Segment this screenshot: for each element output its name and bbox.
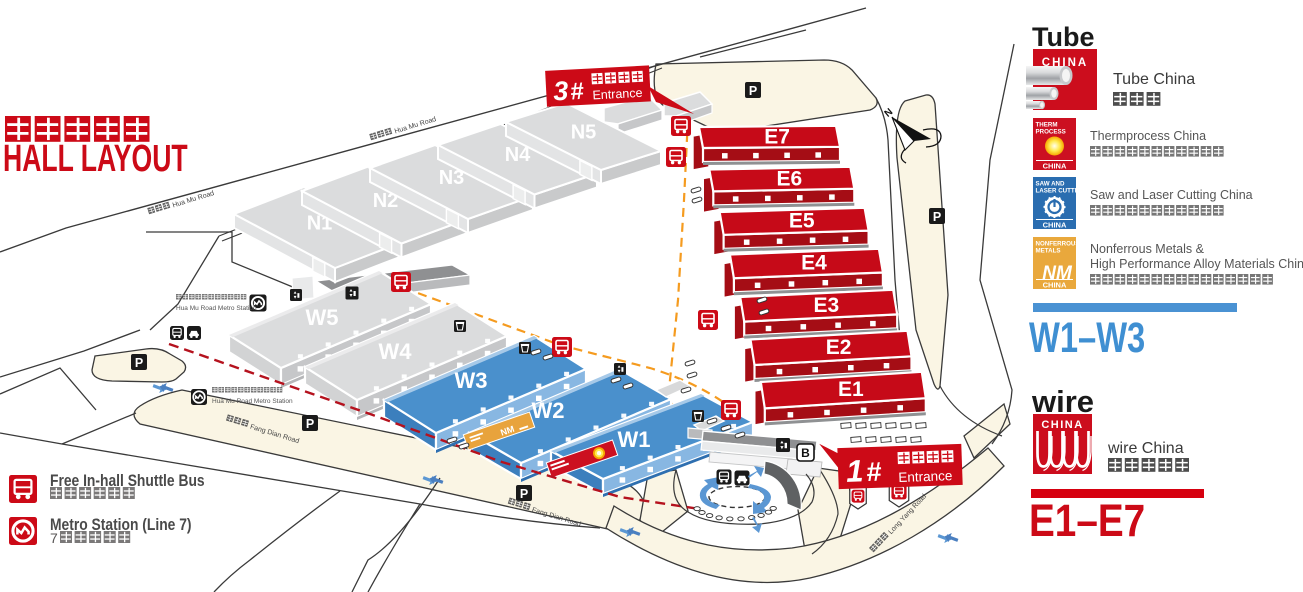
svg-text:1: 1 xyxy=(846,453,864,489)
svg-text:CHINA: CHINA xyxy=(1041,419,1083,431)
svg-text:P: P xyxy=(933,210,941,224)
svg-text:Hua Mu Road Metro Station: Hua Mu Road Metro Station xyxy=(176,305,257,312)
svg-text:wire: wire xyxy=(1031,384,1094,419)
svg-text:CHINA: CHINA xyxy=(1043,162,1067,171)
svg-text:P: P xyxy=(306,417,314,431)
svg-text:W3: W3 xyxy=(455,368,488,393)
svg-text:P: P xyxy=(749,84,757,98)
svg-text:Entrance: Entrance xyxy=(898,468,953,485)
svg-text:#: # xyxy=(570,78,585,106)
svg-text:E2: E2 xyxy=(826,336,852,359)
svg-text:THERM: THERM xyxy=(1036,122,1058,129)
svg-text:SAW AND: SAW AND xyxy=(1036,181,1066,188)
svg-text:Saw and Laser Cutting China: Saw and Laser Cutting China xyxy=(1090,188,1253,202)
svg-text:High Performance Alloy Materia: High Performance Alloy Materials China xyxy=(1090,257,1303,271)
svg-text:Tube: Tube xyxy=(1032,22,1095,52)
svg-text:CHINA: CHINA xyxy=(1043,221,1067,230)
svg-text:CHINA: CHINA xyxy=(1043,281,1067,290)
svg-text:W4: W4 xyxy=(379,339,413,364)
svg-text:Tube China: Tube China xyxy=(1113,71,1195,88)
svg-text:HALL LAYOUT: HALL LAYOUT xyxy=(3,136,188,179)
svg-text:PROCESS: PROCESS xyxy=(1036,129,1066,136)
svg-text:W1–W3: W1–W3 xyxy=(1029,314,1145,362)
svg-text:E1–E7: E1–E7 xyxy=(1029,495,1145,545)
svg-text:NONFERROUS: NONFERROUS xyxy=(1036,241,1080,248)
svg-text:W1: W1 xyxy=(618,427,651,452)
svg-text:7: 7 xyxy=(50,530,58,546)
svg-text:E7: E7 xyxy=(764,125,790,148)
svg-text:LASER CUTTING: LASER CUTTING xyxy=(1036,188,1086,195)
svg-text:METALS: METALS xyxy=(1036,248,1061,255)
svg-text:Hua Mu Road Metro Station: Hua Mu Road Metro Station xyxy=(212,398,293,405)
svg-text:P: P xyxy=(135,356,143,370)
svg-text:E6: E6 xyxy=(777,168,803,191)
svg-text:W2: W2 xyxy=(532,398,565,423)
svg-text:W5: W5 xyxy=(306,305,339,330)
svg-text:3: 3 xyxy=(552,76,569,107)
svg-text:E4: E4 xyxy=(801,252,827,275)
svg-text:B: B xyxy=(801,446,810,460)
svg-text:E3: E3 xyxy=(813,294,839,317)
svg-text:Thermprocess China: Thermprocess China xyxy=(1090,129,1206,143)
svg-text:Entrance: Entrance xyxy=(592,86,643,103)
svg-text:P: P xyxy=(520,487,528,501)
svg-text:Nonferrous Metals &: Nonferrous Metals & xyxy=(1090,242,1205,256)
svg-text:E5: E5 xyxy=(789,210,815,233)
svg-text:N5: N5 xyxy=(571,122,597,144)
svg-text:#: # xyxy=(866,457,882,488)
svg-text:wire China: wire China xyxy=(1107,440,1184,457)
svg-text:E1: E1 xyxy=(838,378,864,401)
